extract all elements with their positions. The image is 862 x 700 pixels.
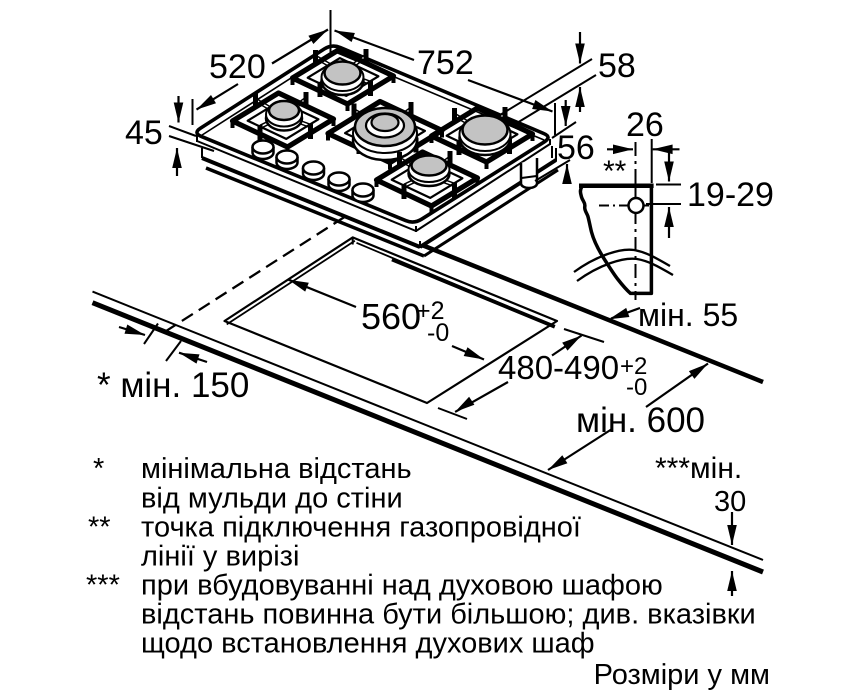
svg-text:* мін. 150: * мін. 150 xyxy=(97,366,249,405)
svg-text:щодо встановлення духових шаф: щодо встановлення духових шаф xyxy=(141,628,595,660)
svg-text:Розміри у мм: Розміри у мм xyxy=(594,659,770,691)
svg-text:від мульди до стіни: від мульди до стіни xyxy=(141,483,403,515)
svg-text:58: 58 xyxy=(598,47,636,85)
svg-text:мін. 600: мін. 600 xyxy=(576,401,705,440)
svg-text:точка підключення газопровідно: точка підключення газопровідної xyxy=(141,512,581,544)
svg-text:520: 520 xyxy=(209,48,266,86)
svg-text:45: 45 xyxy=(125,114,163,152)
svg-text:мін. 55: мін. 55 xyxy=(638,297,738,333)
svg-text:-0: -0 xyxy=(626,374,647,401)
svg-text:*: * xyxy=(93,453,104,485)
svg-text:480-490: 480-490 xyxy=(498,349,619,386)
svg-text:-0: -0 xyxy=(427,319,449,347)
svg-text:**: ** xyxy=(603,155,627,188)
svg-text:при вбудовуванні над духовою ш: при вбудовуванні над духовою шафою xyxy=(141,570,663,602)
svg-text:26: 26 xyxy=(626,106,664,144)
svg-text:560: 560 xyxy=(361,296,421,337)
svg-text:**: ** xyxy=(88,512,111,544)
svg-text:відстань повинна бути більшою;: відстань повинна бути більшою; див. вказ… xyxy=(141,599,756,631)
svg-text:лінії у вирізі: лінії у вирізі xyxy=(141,541,299,573)
svg-text:752: 752 xyxy=(417,44,474,82)
svg-text:***мін.: ***мін. xyxy=(655,452,742,485)
svg-text:56: 56 xyxy=(557,129,595,167)
svg-text:30: 30 xyxy=(714,486,746,518)
svg-text:19-29: 19-29 xyxy=(687,176,774,214)
svg-text:***: *** xyxy=(86,570,120,602)
svg-text:мінімальна відстань: мінімальна відстань xyxy=(141,453,412,485)
